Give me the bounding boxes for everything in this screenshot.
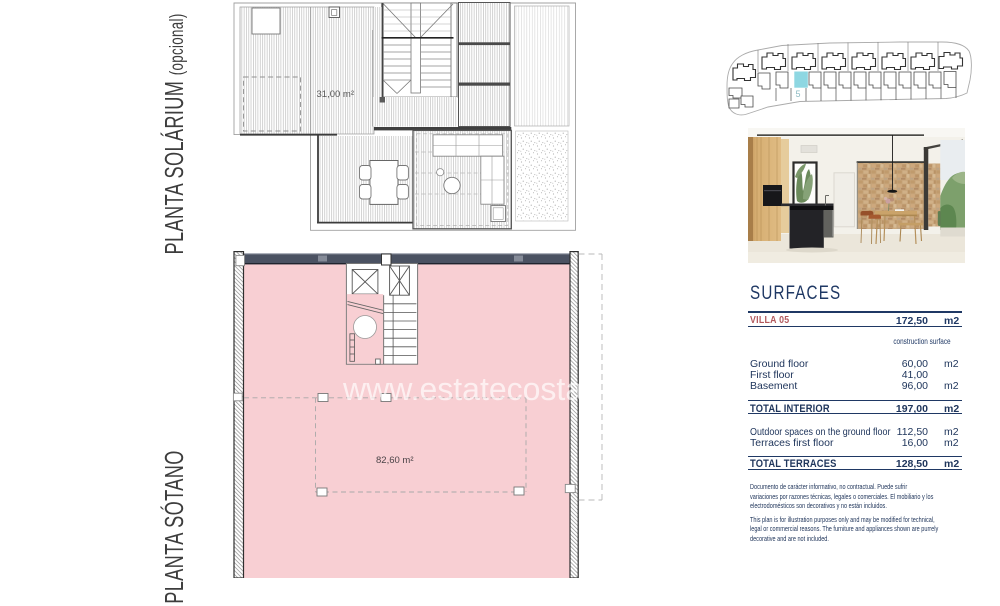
svg-text:82,60 m²: 82,60 m² [376, 455, 414, 466]
svg-text:31,00 m²: 31,00 m² [317, 89, 355, 100]
svg-text:5: 5 [796, 89, 801, 99]
